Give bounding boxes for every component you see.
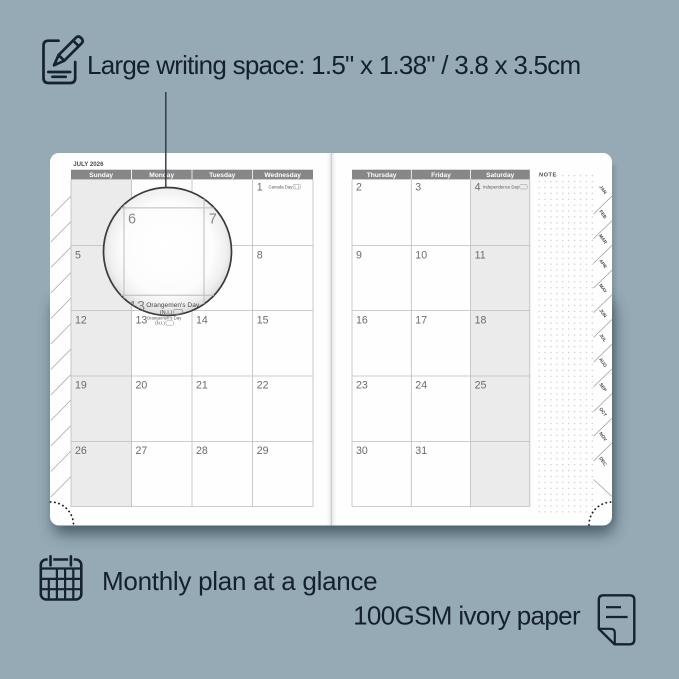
svg-text:29: 29	[257, 445, 269, 457]
svg-text:10: 10	[415, 249, 427, 261]
svg-text:4: 4	[475, 181, 481, 193]
svg-text:Orangemen's Day: Orangemen's Day	[146, 302, 200, 309]
svg-text:Thursday: Thursday	[367, 172, 397, 179]
svg-text:11: 11	[475, 249, 486, 261]
svg-text:9: 9	[356, 249, 362, 261]
svg-text:5: 5	[75, 249, 81, 261]
svg-text:Monthly plan at a glance: Monthly plan at a glance	[102, 566, 377, 596]
svg-text:18: 18	[475, 314, 487, 326]
svg-text:23: 23	[356, 380, 368, 392]
svg-text:28: 28	[196, 445, 208, 457]
svg-text:17: 17	[415, 314, 427, 326]
svg-text:Tuesday: Tuesday	[209, 172, 236, 179]
svg-text:14: 14	[196, 314, 208, 326]
svg-text:Wednesday: Wednesday	[264, 172, 301, 179]
svg-text:Independence Day: Independence Day	[483, 184, 520, 189]
svg-text:15: 15	[257, 314, 269, 326]
svg-text:25: 25	[475, 380, 487, 392]
svg-text:(N.I.): (N.I.)	[160, 310, 173, 316]
svg-text:6: 6	[128, 211, 136, 227]
svg-text:7: 7	[209, 211, 217, 227]
svg-text:20: 20	[136, 380, 148, 392]
svg-text:27: 27	[136, 445, 148, 457]
svg-text:Friday: Friday	[431, 172, 451, 179]
svg-text:Canada Day: Canada Day	[269, 184, 294, 189]
svg-text:2: 2	[356, 181, 362, 193]
svg-text:31: 31	[415, 445, 427, 457]
svg-text:8: 8	[257, 249, 263, 261]
svg-text:JULY 2026: JULY 2026	[73, 161, 104, 168]
svg-text:(N.I.): (N.I.)	[155, 321, 165, 326]
svg-text:30: 30	[356, 445, 368, 457]
svg-text:22: 22	[257, 380, 269, 392]
svg-text:12: 12	[75, 314, 87, 326]
svg-text:Monday: Monday	[149, 172, 174, 179]
svg-text:Sunday: Sunday	[89, 172, 113, 179]
svg-text:NOTE: NOTE	[539, 172, 557, 178]
svg-text:Saturday: Saturday	[486, 172, 515, 179]
svg-text:13: 13	[136, 314, 148, 326]
svg-text:26: 26	[75, 445, 87, 457]
svg-text:16: 16	[356, 314, 368, 326]
svg-text:3: 3	[415, 181, 421, 193]
svg-text:Large writing space: 1.5" x 1.: Large writing space: 1.5" x 1.38" / 3.8 …	[87, 50, 580, 80]
svg-text:1: 1	[257, 181, 263, 193]
svg-text:19: 19	[75, 380, 87, 392]
svg-text:100GSM ivory paper: 100GSM ivory paper	[353, 601, 581, 631]
svg-text:21: 21	[196, 380, 208, 392]
svg-text:24: 24	[415, 380, 427, 392]
